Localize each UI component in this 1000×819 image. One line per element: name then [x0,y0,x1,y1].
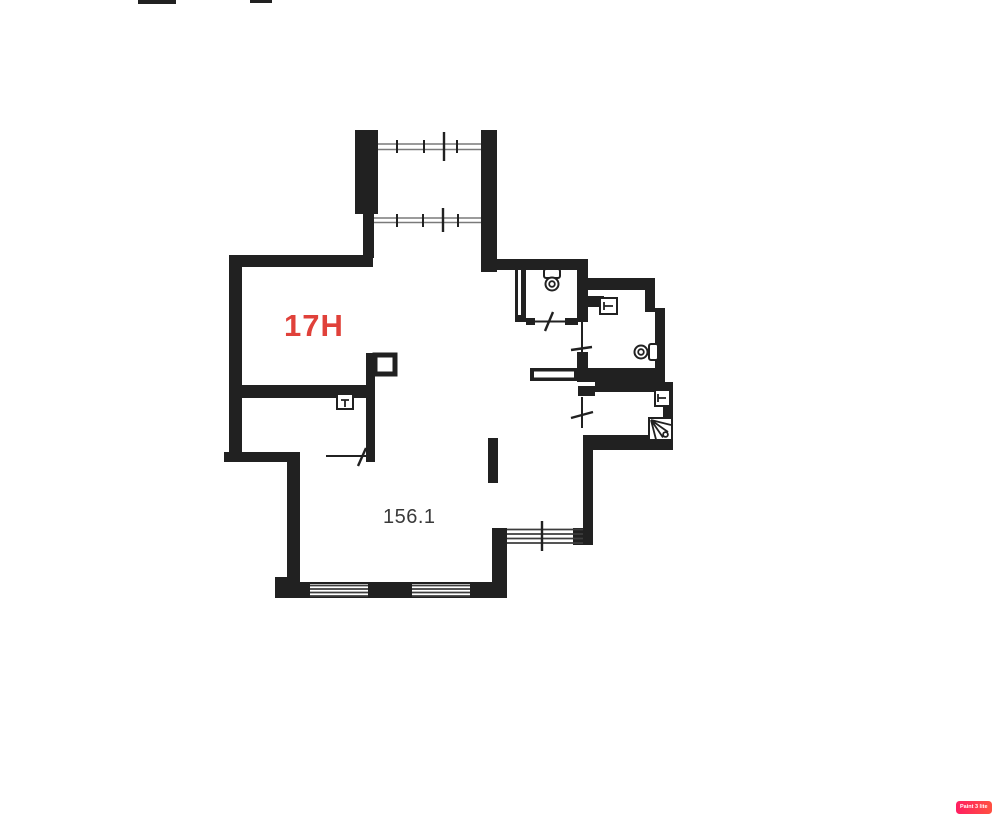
page-edge-mark [250,0,272,3]
page-edge-mark [138,0,176,4]
watermark-badge: Paint 3 lite [956,801,992,814]
wall-segment [655,308,665,372]
wall-segment [363,210,374,258]
wall-segment [565,318,578,325]
duct-wall [530,368,578,381]
bottom-wall-window-right-icon [412,584,470,596]
wall-segment [497,259,588,270]
toilet-icon [544,269,560,291]
sink-icon [337,394,353,409]
wall-segment [588,278,655,290]
bay-window-bottom-icon [374,208,481,232]
wall-segment [287,455,300,585]
wall-segment [577,266,588,322]
door-swing-tick [571,347,592,350]
wall-segment [645,278,655,312]
wall-segment [355,130,378,214]
door-opening [571,397,593,428]
vent-shaft-icon [375,355,395,374]
unit-number-label: 17H [284,308,344,343]
door-opening [571,322,592,352]
wall-segment [488,438,498,483]
watermark-label: Paint 3 lite [960,801,988,814]
shaft-partition [515,266,526,322]
toilet-icon [635,344,659,360]
sink-icon [655,390,670,406]
bay-window-top-icon [378,132,481,161]
area-label: 156.1 [383,506,436,528]
wall-segment [577,368,665,382]
door-opening [326,448,368,466]
bottom-wall-window-left-icon [310,584,368,596]
sink-icon [600,298,617,314]
side-window-bottom-right-icon [507,521,583,551]
floor-plan-svg: 17H 156.1 [0,0,1000,819]
wall-segment [577,352,588,368]
door-opening [535,312,565,331]
shower-tray-icon [649,418,672,440]
wall-segment [578,386,595,396]
wall-segment [481,130,497,272]
wall-segment [526,318,535,325]
wall-segment [229,255,373,267]
wall-segment [492,528,507,598]
wall-segment [229,255,242,462]
wall-segment [583,440,593,543]
